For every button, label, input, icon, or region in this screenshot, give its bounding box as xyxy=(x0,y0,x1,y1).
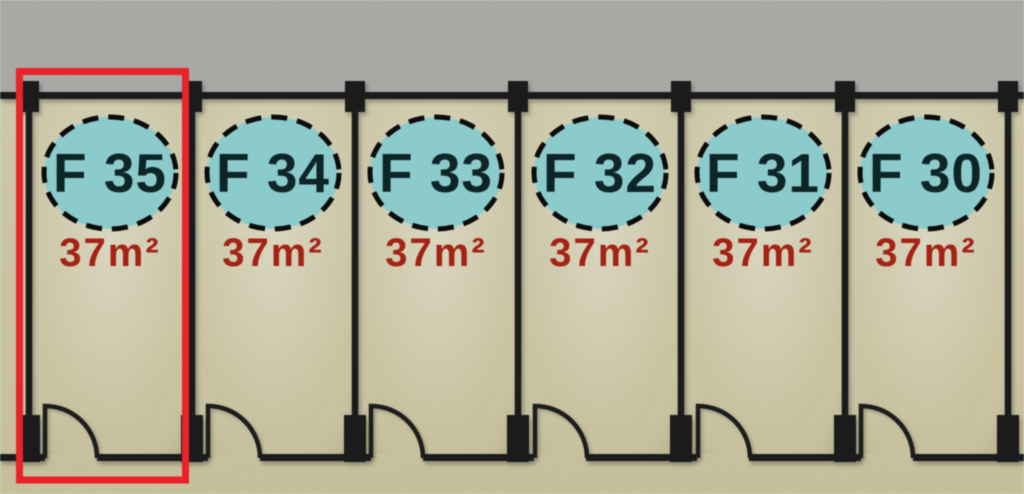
unit-area-label: 37m² xyxy=(712,231,813,275)
unit-f30[interactable]: F 30 37m² xyxy=(849,99,1004,458)
unit-area-label: 37m² xyxy=(385,231,486,275)
unit-number-label: F 35 xyxy=(53,142,167,204)
floor-plan-page: F 35 37m² F 34 37m² F 33 37m² F 32 37m² … xyxy=(0,0,1024,494)
unit-area-label: 37m² xyxy=(875,231,976,275)
unit-number-label: F 30 xyxy=(869,142,983,204)
floor-plan: F 35 37m² F 34 37m² F 33 37m² F 32 37m² … xyxy=(0,0,1024,494)
unit-f34[interactable]: F 34 37m² xyxy=(196,99,351,458)
unit-number-label: F 34 xyxy=(216,142,330,204)
unit-f33[interactable]: F 33 37m² xyxy=(359,99,514,458)
unit-area-label: 37m² xyxy=(222,231,323,275)
unit-area-label: 37m² xyxy=(59,231,160,275)
unit-number-label: F 32 xyxy=(543,142,657,204)
unit-f31[interactable]: F 31 37m² xyxy=(686,99,841,458)
unit-number-label: F 31 xyxy=(706,142,820,204)
unit-f32[interactable]: F 32 37m² xyxy=(523,99,678,458)
unit-area-label: 37m² xyxy=(549,231,650,275)
unit-number-label: F 33 xyxy=(379,142,493,204)
unit-f35[interactable]: F 35 37m² xyxy=(33,99,188,458)
